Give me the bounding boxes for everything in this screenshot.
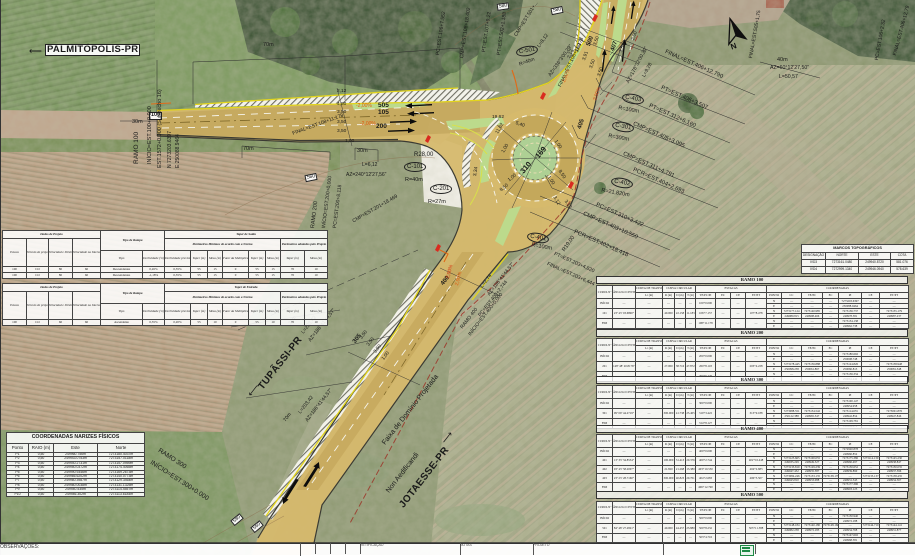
svg-text:N: N [729,41,737,51]
